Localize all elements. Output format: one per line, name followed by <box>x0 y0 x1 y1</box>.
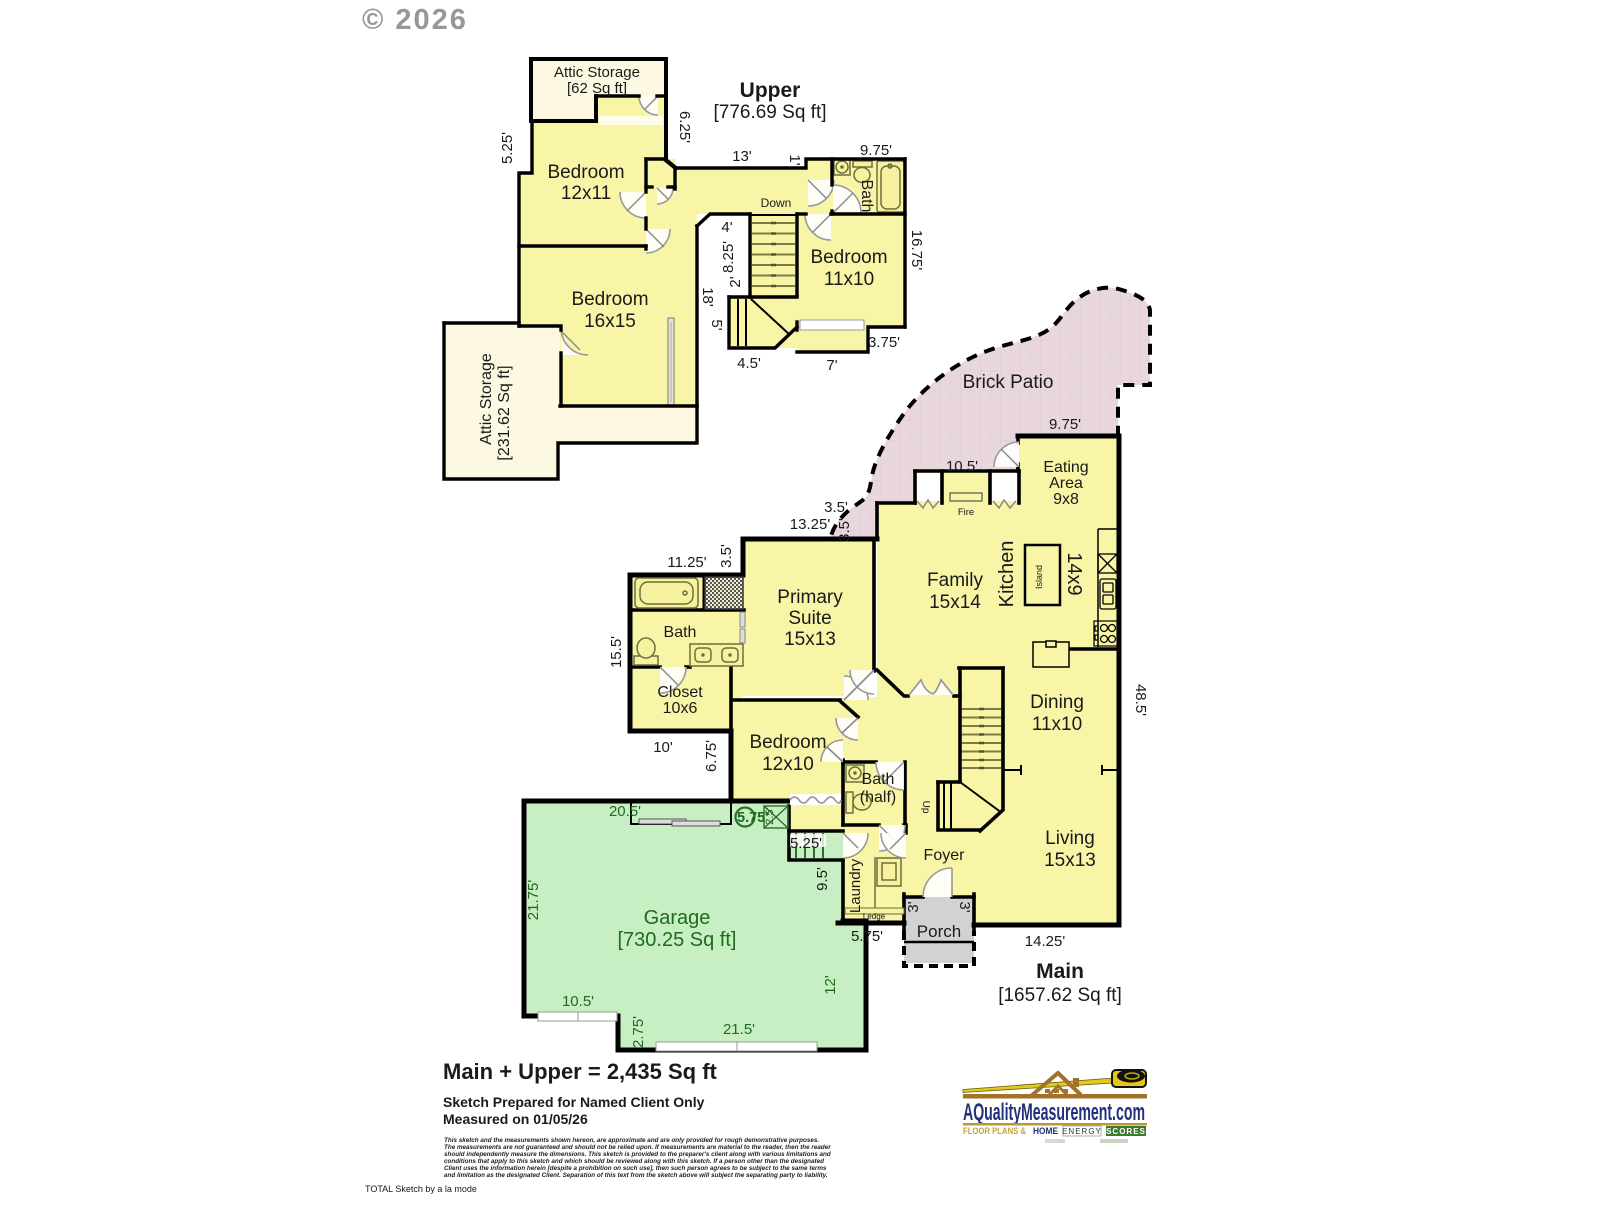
svg-text:Foyer: Foyer <box>924 847 966 864</box>
svg-text:21.5': 21.5' <box>723 1021 755 1038</box>
svg-text:4.5': 4.5' <box>737 355 761 372</box>
svg-text:10.5': 10.5' <box>946 458 978 475</box>
svg-text:Dining: Dining <box>1030 692 1084 713</box>
svg-text:11x10: 11x10 <box>1032 714 1082 735</box>
svg-text:2': 2' <box>727 276 744 287</box>
svg-text:14.25': 14.25' <box>1025 933 1066 950</box>
svg-text:Living: Living <box>1045 828 1095 849</box>
svg-text:© 2026: © 2026 <box>362 4 468 36</box>
svg-text:Upper: Upper <box>740 79 801 102</box>
svg-text:Sketch Prepared for Named Clie: Sketch Prepared for Named Client Only <box>443 1094 705 1110</box>
svg-text:15x13: 15x13 <box>1044 850 1096 871</box>
svg-text:[776.69 Sq ft]: [776.69 Sq ft] <box>713 102 826 123</box>
svg-text:Brick Patio: Brick Patio <box>963 372 1054 393</box>
svg-text:5.25': 5.25' <box>790 835 822 852</box>
svg-text:SCORES: SCORES <box>1106 1127 1146 1136</box>
svg-text:FLOOR PLANS &: FLOOR PLANS & <box>963 1126 1026 1136</box>
svg-text:1': 1' <box>786 154 803 165</box>
svg-text:14x9: 14x9 <box>1063 552 1085 595</box>
svg-text:Ledge: Ledge <box>863 912 886 921</box>
svg-text:11x10: 11x10 <box>824 269 874 290</box>
svg-text:conditions that apply to this: conditions that apply to this sketch and… <box>444 1158 824 1165</box>
svg-text:20.5': 20.5' <box>609 803 641 820</box>
svg-text:12': 12' <box>822 975 839 995</box>
svg-text:Eating: Eating <box>1043 459 1088 476</box>
svg-text:9.75': 9.75' <box>1049 416 1081 433</box>
svg-text:Main: Main <box>1036 960 1084 983</box>
svg-text:[730.25 Sq ft]: [730.25 Sq ft] <box>618 929 737 951</box>
svg-text:16x15: 16x15 <box>584 311 636 332</box>
svg-text:Attic Storage: Attic Storage <box>478 353 495 445</box>
svg-text:4': 4' <box>721 219 732 236</box>
svg-text:Primary: Primary <box>777 587 843 608</box>
svg-text:9.5': 9.5' <box>814 867 831 891</box>
svg-text:Area: Area <box>1049 475 1083 492</box>
svg-text:This sketch and the measuremen: This sketch and the measurements shown h… <box>444 1137 819 1144</box>
svg-text:6.75': 6.75' <box>703 740 720 772</box>
svg-text:2.5': 2.5' <box>764 807 776 824</box>
svg-text:10x6: 10x6 <box>663 700 698 717</box>
svg-text:Fire: Fire <box>958 507 974 518</box>
svg-text:6.25': 6.25' <box>676 111 693 143</box>
svg-text:Closet: Closet <box>657 684 703 701</box>
svg-text:10.5': 10.5' <box>562 993 594 1010</box>
svg-text:AQualityMeasurement.com: AQualityMeasurement.com <box>963 1099 1145 1126</box>
svg-text:3': 3' <box>905 901 922 912</box>
svg-text:Main + Upper = 2,435 Sq ft: Main + Upper = 2,435 Sq ft <box>443 1059 718 1084</box>
svg-text:48.5': 48.5' <box>1132 684 1149 716</box>
svg-text:5': 5' <box>708 319 725 330</box>
svg-text:12x11: 12x11 <box>561 183 611 204</box>
svg-text:Bedroom: Bedroom <box>749 732 826 753</box>
svg-text:15x13: 15x13 <box>784 629 836 650</box>
svg-text:Island: Island <box>1034 565 1044 589</box>
svg-text:Bedroom: Bedroom <box>547 162 624 183</box>
svg-text:Bedroom: Bedroom <box>571 289 648 310</box>
svg-text:7': 7' <box>826 357 837 374</box>
svg-text:[62 Sq ft]: [62 Sq ft] <box>567 80 627 97</box>
svg-text:13.25': 13.25' <box>790 516 831 533</box>
svg-text:Suite: Suite <box>788 608 831 629</box>
svg-text:Up: Up <box>920 801 931 814</box>
svg-text:10': 10' <box>653 739 673 756</box>
svg-text:Measured on 01/05/26: Measured on 01/05/26 <box>443 1111 588 1127</box>
svg-text:[1657.62 Sq ft]: [1657.62 Sq ft] <box>998 985 1122 1006</box>
svg-text:The measurements are not guara: The measurements are not guaranteed and … <box>444 1144 831 1151</box>
svg-text:3.75': 3.75' <box>868 334 900 351</box>
svg-text:15x14: 15x14 <box>929 592 981 613</box>
svg-text:12x10: 12x10 <box>762 754 814 775</box>
svg-text:3.5': 3.5' <box>836 518 853 542</box>
svg-text:Bath: Bath <box>858 180 875 213</box>
svg-text:Bath: Bath <box>664 624 697 641</box>
svg-text:Bath: Bath <box>862 771 895 788</box>
svg-text:3': 3' <box>956 901 973 912</box>
svg-text:9.75': 9.75' <box>860 142 892 159</box>
svg-text:should independently measure t: should independently measure the dimensi… <box>444 1151 831 1158</box>
svg-text:ENERGY: ENERGY <box>1062 1127 1102 1136</box>
svg-text:3.5': 3.5' <box>718 544 735 568</box>
svg-text:5.25': 5.25' <box>499 132 516 164</box>
svg-text:16.75': 16.75' <box>908 230 925 271</box>
svg-text:3.5': 3.5' <box>824 499 848 516</box>
svg-text:13': 13' <box>732 148 752 165</box>
svg-text:9x8: 9x8 <box>1053 491 1079 508</box>
svg-text:Attic Storage: Attic Storage <box>554 64 640 81</box>
svg-text:8.25': 8.25' <box>720 241 737 273</box>
svg-text:Client uses the information he: Client uses the information herein [desp… <box>444 1165 827 1172</box>
svg-text:2.75': 2.75' <box>630 1016 647 1048</box>
svg-text:21.75': 21.75' <box>525 880 542 921</box>
svg-text:11.25': 11.25' <box>667 554 706 571</box>
svg-text:Down: Down <box>761 196 792 210</box>
svg-text:Porch: Porch <box>917 922 961 941</box>
svg-text:[231.62 Sq ft]: [231.62 Sq ft] <box>496 365 513 460</box>
svg-text:HOME: HOME <box>1033 1126 1058 1137</box>
svg-text:Kitchen: Kitchen <box>996 541 1018 608</box>
svg-text:Garage: Garage <box>644 907 711 929</box>
svg-text:(half): (half) <box>860 789 896 806</box>
svg-text:15.5': 15.5' <box>608 636 625 668</box>
svg-text:and limitation as the designat: and limitation as the designated Client.… <box>444 1172 828 1179</box>
svg-text:5.75': 5.75' <box>851 928 883 945</box>
svg-text:Laundry: Laundry <box>847 858 864 913</box>
svg-text:18': 18' <box>699 287 716 307</box>
svg-text:TOTAL Sketch by a la mode: TOTAL Sketch by a la mode <box>365 1184 477 1194</box>
svg-text:Family: Family <box>927 570 983 591</box>
svg-text:Bedroom: Bedroom <box>810 247 887 268</box>
